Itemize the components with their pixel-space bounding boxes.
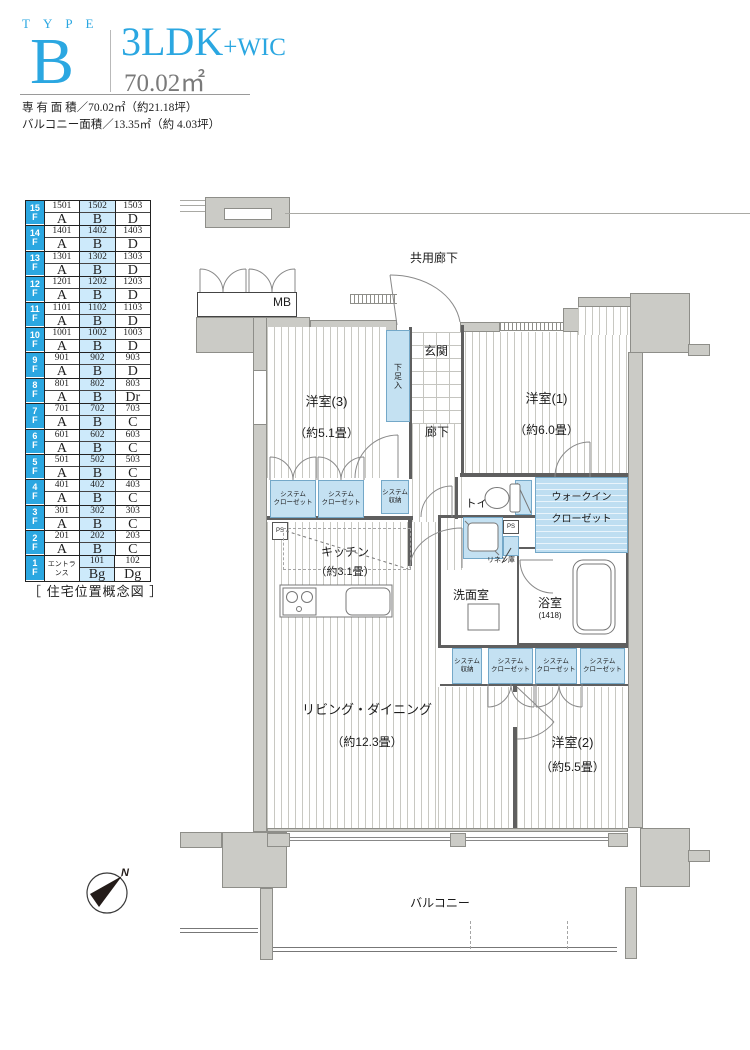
- stove-burner: [287, 592, 298, 603]
- unit-type: A: [45, 315, 79, 328]
- unit-type: B: [80, 543, 114, 556]
- unit-type: B: [80, 264, 114, 277]
- exclusive-area-spec: 専 有 面 積／70.02㎡（約21.18坪）: [22, 99, 197, 115]
- unit-cell: 602B: [79, 430, 114, 454]
- floor-label: 8F: [26, 379, 44, 403]
- unit-cell: 102Dg: [114, 556, 150, 580]
- unit-cell: 803Dr: [115, 379, 150, 403]
- kitchen-sink: [346, 588, 390, 615]
- unit-type: A: [45, 416, 79, 429]
- floor-row: 7F701A702B703C: [26, 404, 150, 429]
- unit-cell: 502B: [79, 455, 114, 479]
- unit-type: D: [116, 340, 150, 353]
- unit-number: 1101: [45, 303, 79, 315]
- unit-type: B: [80, 467, 114, 480]
- unit-cell: 703C: [115, 404, 150, 428]
- unit-type: B: [80, 365, 114, 378]
- toilet-bowl: [485, 488, 509, 509]
- unit-type: D: [116, 365, 150, 378]
- unit-cell: 402B: [79, 480, 114, 504]
- unit-cell: 203C: [115, 531, 150, 555]
- table-caption: ［ 住宅位置概念図 ］: [28, 581, 158, 600]
- unit-cell: 1101A: [44, 303, 79, 327]
- type-letter: B: [30, 32, 74, 92]
- unit-number: 1102: [80, 303, 114, 315]
- unit-cell: 1301A: [44, 252, 79, 276]
- unit-cell: 503C: [115, 455, 150, 479]
- unit-number: 1103: [116, 303, 150, 315]
- floor-table: 15F1501A1502B1503D14F1401A1402B1403D13F1…: [25, 200, 151, 582]
- unit-type: A: [45, 518, 79, 531]
- floor-row: 5F501A502B503C: [26, 455, 150, 480]
- unit-cell: 1302B: [79, 252, 114, 276]
- unit-cell: 1502B: [79, 201, 114, 225]
- floor-row: 6F601A602B603C: [26, 430, 150, 455]
- unit-type: D: [116, 238, 150, 251]
- unit-type: D: [116, 213, 150, 226]
- stove-burner: [297, 607, 302, 612]
- plan-suffix: +WIC: [223, 34, 286, 61]
- unit-number: 303: [116, 506, 150, 518]
- unit-cell: 801A: [44, 379, 79, 403]
- unit-type: D: [116, 289, 150, 302]
- door-swings-and-fixtures: [180, 195, 750, 990]
- unit-type: A: [45, 365, 79, 378]
- unit-type: C: [116, 467, 150, 480]
- unit-number: 602: [80, 430, 114, 442]
- washing-machine-pan: [468, 604, 499, 630]
- unit-type: A: [45, 264, 79, 277]
- floor-label: 2F: [26, 531, 44, 555]
- unit-cell: 1303D: [115, 252, 150, 276]
- unit-type: B: [80, 340, 114, 353]
- floor-label: 5F: [26, 455, 44, 479]
- plan-type: 3LDK: [121, 19, 223, 64]
- unit-number: 802: [80, 379, 114, 391]
- header-divider: [110, 30, 111, 92]
- unit-cell: 1203D: [115, 277, 150, 301]
- unit-cell: 1102B: [79, 303, 114, 327]
- floor-label: 7F: [26, 404, 44, 428]
- unit-cell: 903D: [115, 353, 150, 377]
- unit-cell: 1401A: [44, 226, 79, 250]
- unit-type: D: [116, 315, 150, 328]
- unit-type: D: [116, 264, 150, 277]
- unit-number: 803: [116, 379, 150, 391]
- unit-cell: 1402B: [79, 226, 114, 250]
- unit-number: 603: [116, 430, 150, 442]
- floor-row: 3F301A302B303C: [26, 506, 150, 531]
- unit-cell: 1002B: [79, 328, 114, 352]
- unit-number: 302: [80, 506, 114, 518]
- unit-type: B: [80, 315, 114, 328]
- unit-type: A: [45, 238, 79, 251]
- floor-label: 6F: [26, 430, 44, 454]
- unit-type: C: [116, 518, 150, 531]
- unit-number: 1301: [45, 252, 79, 264]
- unit-type: A: [45, 213, 79, 226]
- bathtub-inner: [577, 564, 611, 630]
- unit-type: B: [80, 213, 114, 226]
- floor-label: 11F: [26, 303, 44, 327]
- floor-row: 12F1201A1202B1203D: [26, 277, 150, 302]
- floor-label: 9F: [26, 353, 44, 377]
- unit-type: A: [45, 467, 79, 480]
- unit-cell: 501A: [44, 455, 79, 479]
- unit-type: B: [80, 238, 114, 251]
- unit-type: B: [80, 289, 114, 302]
- unit-cell: 1201A: [44, 277, 79, 301]
- unit-cell: 802B: [79, 379, 114, 403]
- unit-type: C: [116, 442, 150, 455]
- floor-row: 8F801A802B803Dr: [26, 379, 150, 404]
- toilet-tank: [510, 484, 520, 512]
- compass-north-label: N: [121, 867, 130, 879]
- unit-cell: 303C: [115, 506, 150, 530]
- unit-type: A: [45, 340, 79, 353]
- unit-type: Bg: [80, 568, 115, 581]
- unit-cell: 1003D: [115, 328, 150, 352]
- unit-cell: 1503D: [115, 201, 150, 225]
- unit-type: A: [45, 391, 79, 404]
- floor-label: 15F: [26, 201, 44, 225]
- floor-label: 13F: [26, 252, 44, 276]
- unit-type: B: [80, 442, 114, 455]
- unit-type: A: [45, 442, 79, 455]
- unit-cell: 701A: [44, 404, 79, 428]
- unit-cell: 1403D: [115, 226, 150, 250]
- floorplan-page: { "header": { "type_word": "TYPE", "type…: [0, 0, 750, 1050]
- unit-cell: 603C: [115, 430, 150, 454]
- unit-cell: 702B: [79, 404, 114, 428]
- unit-type: C: [116, 492, 150, 505]
- unit-cell: 403C: [115, 480, 150, 504]
- unit-cell: 301A: [44, 506, 79, 530]
- unit-cell: 201A: [44, 531, 79, 555]
- unit-type: B: [80, 416, 114, 429]
- floor-row: 13F1301A1302B1303D: [26, 252, 150, 277]
- floor-row: 11F1101A1102B1103D: [26, 303, 150, 328]
- floor-label: 10F: [26, 328, 44, 352]
- floor-row: 1Fエントランス101Bg102Dg: [26, 556, 150, 580]
- unit-cell: 901A: [44, 353, 79, 377]
- unit-cell: 1202B: [79, 277, 114, 301]
- unit-cell: 101Bg: [79, 556, 115, 580]
- unit-cell: 302B: [79, 506, 114, 530]
- unit-cell: 1001A: [44, 328, 79, 352]
- plan-type-line: 3LDK+WIC: [121, 22, 286, 62]
- floor-row: 4F401A402B403C: [26, 480, 150, 505]
- unit-type: A: [45, 543, 79, 556]
- header-rule: [20, 94, 250, 95]
- unit-cell: 1103D: [115, 303, 150, 327]
- unit-type: A: [45, 492, 79, 505]
- floor-label: 4F: [26, 480, 44, 504]
- balcony-area-spec: バルコニー面積／13.35㎡（約 4.03坪）: [22, 116, 220, 132]
- unit-type: A: [45, 289, 79, 302]
- floor-row: 14F1401A1402B1403D: [26, 226, 150, 251]
- unit-type: B: [80, 518, 114, 531]
- unit-cell: エントランス: [44, 556, 79, 580]
- unit-type: B: [80, 391, 114, 404]
- floor-row: 9F901A902B903D: [26, 353, 150, 378]
- unit-cell: 401A: [44, 480, 79, 504]
- unit-number: 1302: [80, 252, 114, 264]
- floor-label: 14F: [26, 226, 44, 250]
- floor-label: 3F: [26, 506, 44, 530]
- washbasin: [468, 523, 498, 551]
- unit-number: 301: [45, 506, 79, 518]
- floor-plan: 共用廊下 MB バルコニー: [180, 195, 750, 990]
- unit-type: Dg: [115, 568, 150, 581]
- floor-row: 2F201A202B203C: [26, 531, 150, 556]
- unit-number: 1303: [116, 252, 150, 264]
- unit-type: C: [116, 416, 150, 429]
- unit-cell: 601A: [44, 430, 79, 454]
- unit-number: 801: [45, 379, 79, 391]
- unit-cell: 202B: [79, 531, 114, 555]
- unit-number: 601: [45, 430, 79, 442]
- unit-cell: 902B: [79, 353, 114, 377]
- floor-row: 15F1501A1502B1503D: [26, 201, 150, 226]
- unit-type: C: [116, 543, 150, 556]
- floor-row: 10F1001A1002B1003D: [26, 328, 150, 353]
- unit-cell: 1501A: [44, 201, 79, 225]
- stove-burner: [302, 592, 313, 603]
- unit-type: Dr: [116, 391, 150, 404]
- unit-type: B: [80, 492, 114, 505]
- floor-label: 12F: [26, 277, 44, 301]
- compass: N: [83, 866, 133, 916]
- floor-label: 1F: [26, 556, 44, 580]
